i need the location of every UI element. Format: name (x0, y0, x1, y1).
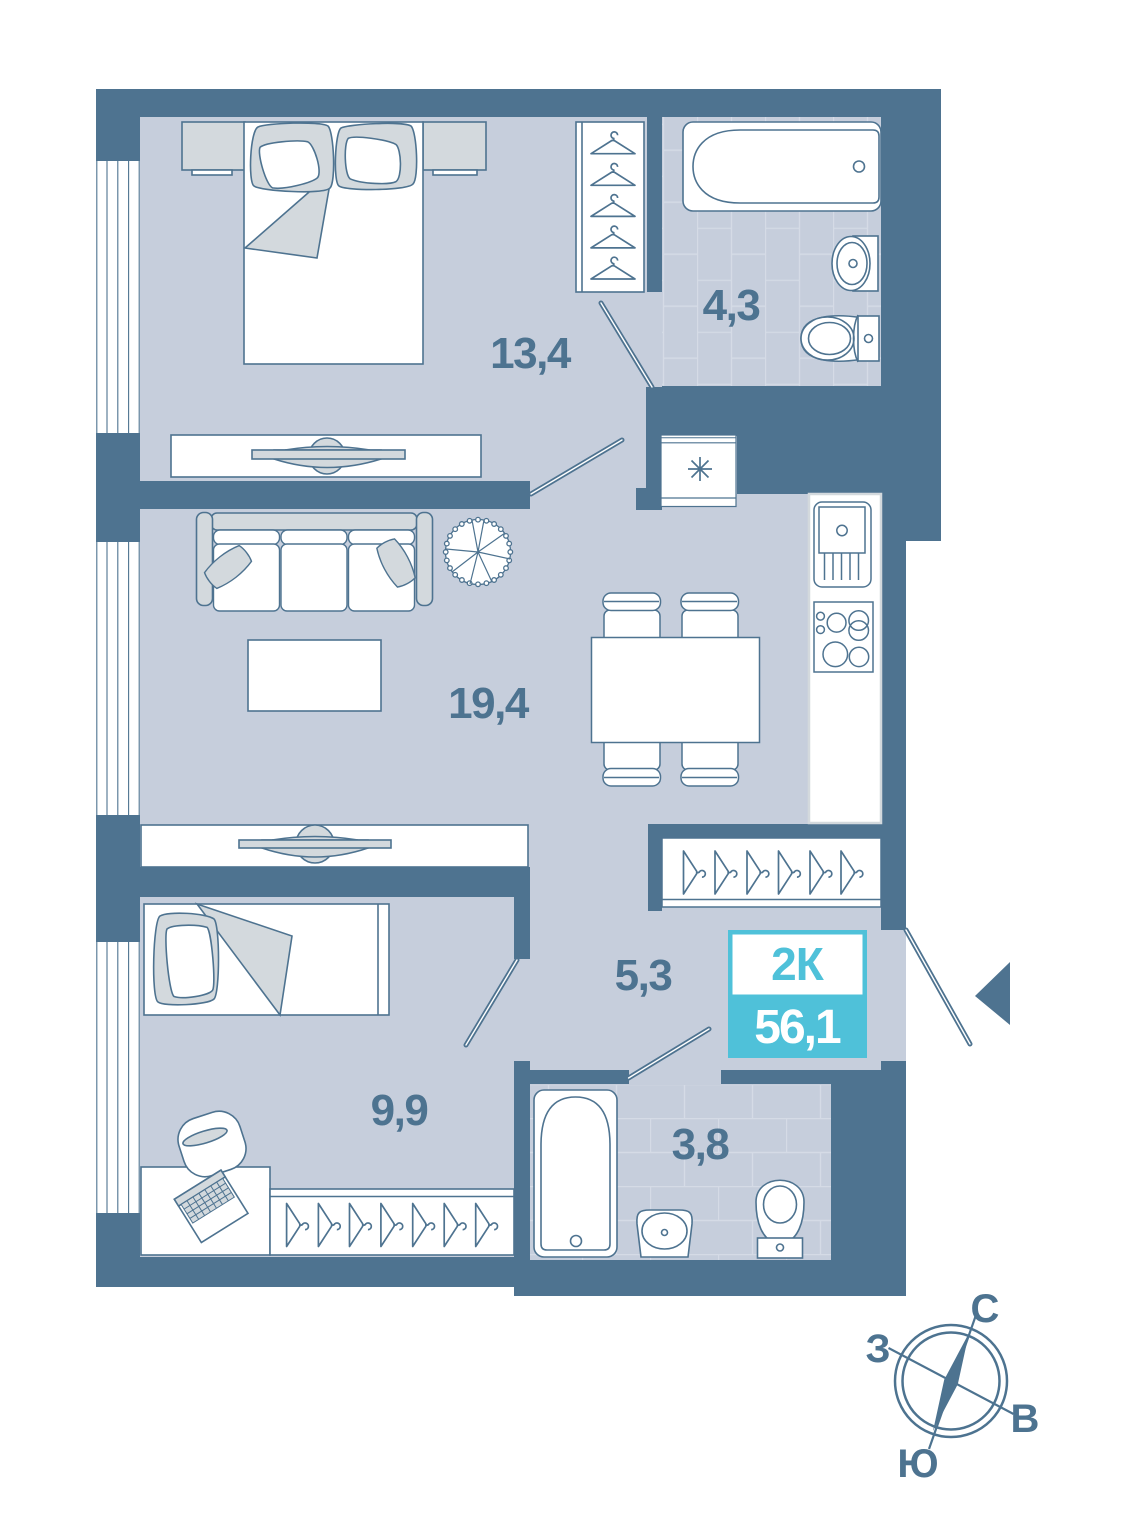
svg-text:В: В (1011, 1397, 1040, 1441)
svg-text:С: С (971, 1287, 1000, 1331)
svg-text:4,3: 4,3 (703, 281, 760, 330)
svg-text:56,1: 56,1 (754, 1001, 841, 1054)
svg-text:19,4: 19,4 (448, 679, 530, 728)
svg-text:13,4: 13,4 (490, 329, 572, 378)
svg-text:2К: 2К (771, 938, 825, 990)
svg-text:Ю: Ю (897, 1442, 938, 1486)
svg-text:З: З (865, 1327, 890, 1371)
svg-text:3,8: 3,8 (672, 1120, 730, 1169)
svg-text:5,3: 5,3 (615, 951, 672, 1000)
svg-text:9,9: 9,9 (371, 1086, 428, 1135)
